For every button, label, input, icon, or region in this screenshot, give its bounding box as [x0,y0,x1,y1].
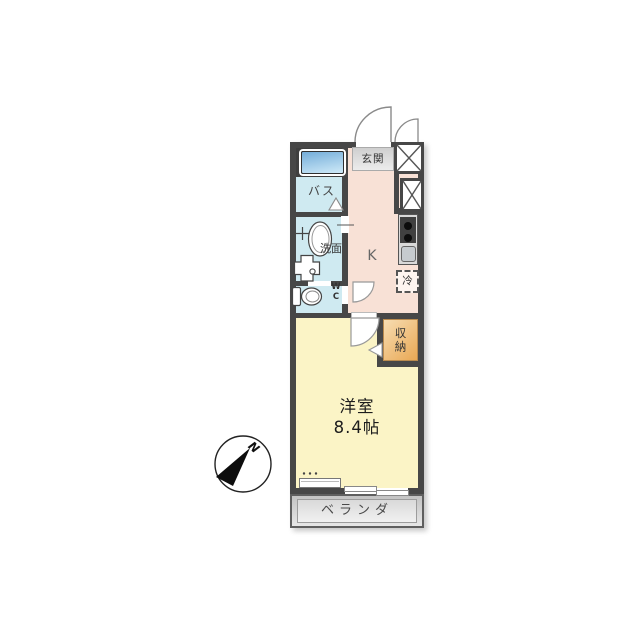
sliding-door-panel-2 [376,490,409,496]
balcony-label: ベランダ [321,503,393,518]
storage-label: 収納 [393,327,409,354]
entrance-label: 玄関 [362,153,385,165]
bathtub [301,151,344,174]
compass-north-arrow-icon [216,448,250,486]
toilet-door-opening [308,281,331,286]
room-door-opening [351,312,377,319]
compass: N [215,436,271,492]
refrigerator-label: 冷 [402,275,413,287]
toilet-label: W C [329,283,343,302]
floorplan-page: { "floorplan": { "compass": { "north_lab… [0,0,640,640]
meter-box [394,142,424,174]
washroom-door-opening [341,216,349,233]
meterbox-door-arc [395,119,418,142]
main-room-label: 洋室 8.4帖 [296,396,418,438]
pipe-space-box [400,178,424,212]
sliding-door-panel-1 [344,486,377,492]
washroom-label: 洗面 [313,240,349,256]
compass-north-label: N [245,439,262,456]
entrance-door-arc [355,107,391,142]
kitchen-sink [401,246,416,262]
kitchen-label: K [360,248,384,264]
wall-bottom-left [290,488,345,494]
wall-bottom-right [408,488,424,494]
entrance-area: 玄関 [352,147,394,171]
refrigerator-space: 冷 [396,270,419,293]
wall-toilet-room [296,313,348,318]
balcony-inner-panel: ベランダ [297,499,417,523]
bath-label: バス [296,182,348,199]
main-room-name: 洋室 [296,396,418,417]
wall-storage-bottom [377,361,418,367]
stove [400,217,416,243]
storage-closet: 収納 [383,319,418,361]
main-room-size: 8.4帖 [296,417,418,438]
window-sill [299,478,341,488]
compass-circle [215,436,271,492]
